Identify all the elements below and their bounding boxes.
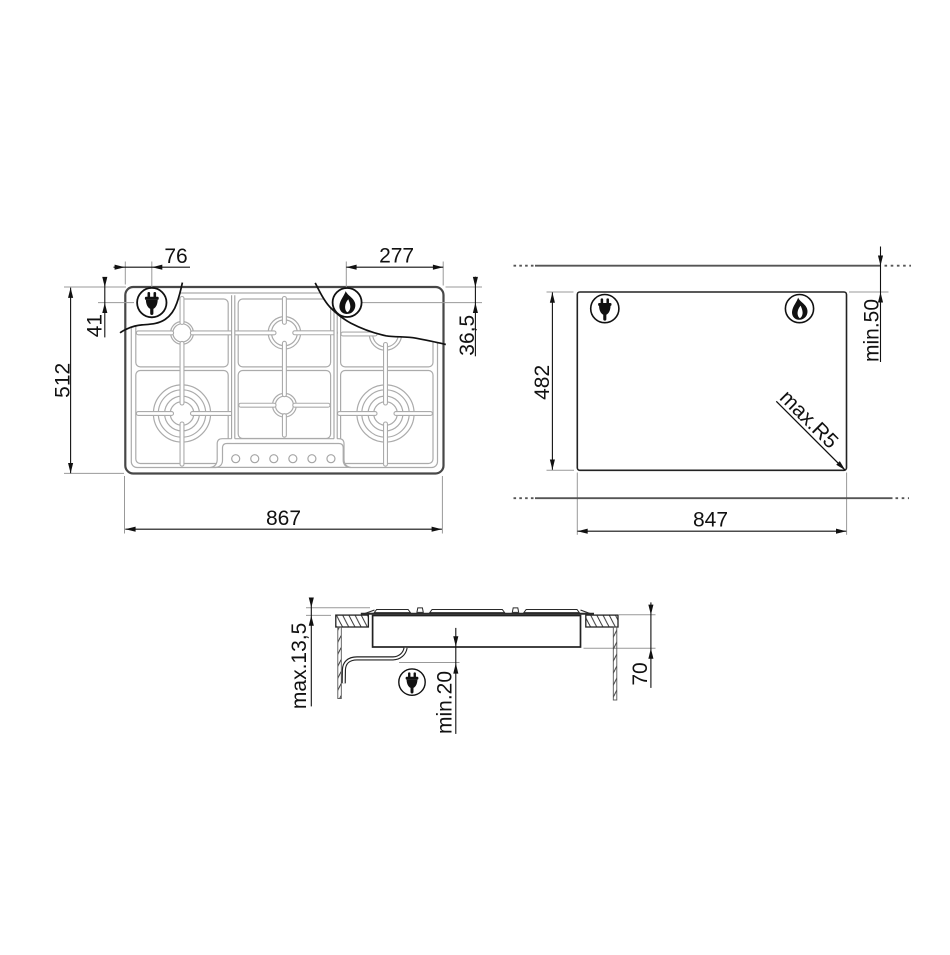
svg-text:847: 847 [693, 509, 728, 532]
svg-text:min.20: min.20 [433, 671, 456, 734]
svg-text:512: 512 [52, 363, 75, 398]
svg-text:max.13,5: max.13,5 [288, 623, 311, 709]
svg-text:41: 41 [84, 314, 107, 337]
svg-text:277: 277 [379, 244, 414, 267]
svg-text:70: 70 [629, 662, 652, 685]
svg-text:36,5: 36,5 [456, 315, 479, 356]
svg-text:max.R5: max.R5 [775, 386, 842, 453]
svg-text:76: 76 [164, 245, 187, 268]
svg-text:482: 482 [531, 365, 554, 400]
svg-text:867: 867 [266, 507, 301, 530]
svg-text:min.50: min.50 [861, 299, 884, 362]
